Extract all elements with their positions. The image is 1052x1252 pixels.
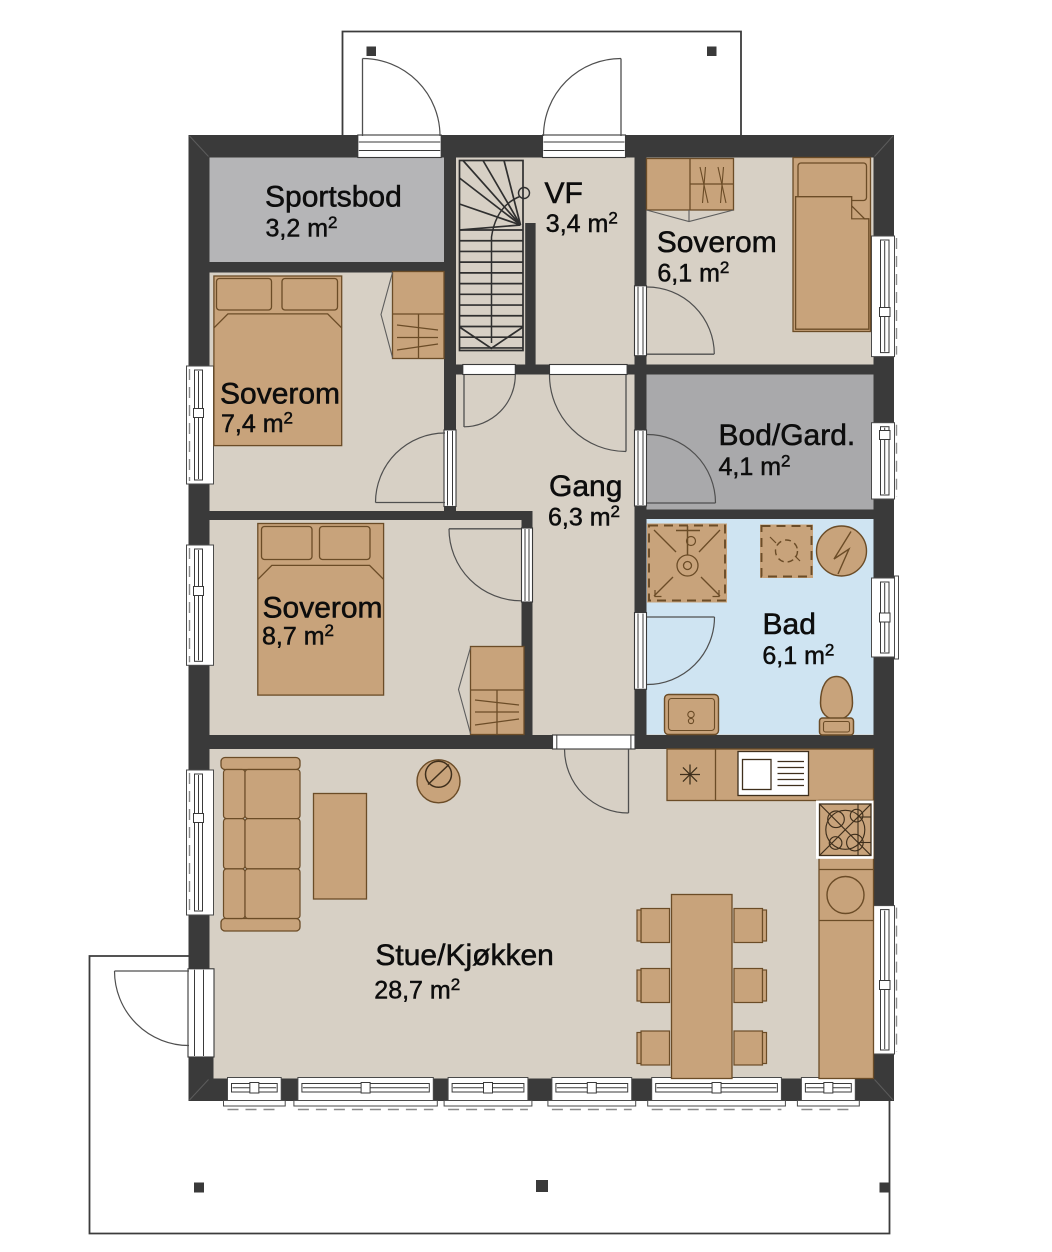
svg-text:4,1 m2: 4,1 m2 xyxy=(719,452,791,482)
svg-text:8,7 m2: 8,7 m2 xyxy=(262,621,334,651)
svg-text:VF: VF xyxy=(545,177,583,210)
svg-text:3,4 m2: 3,4 m2 xyxy=(546,209,618,239)
svg-text:Soverom: Soverom xyxy=(657,226,777,259)
svg-text:28,7 m2: 28,7 m2 xyxy=(374,975,460,1005)
svg-text:6,1 m2: 6,1 m2 xyxy=(657,258,729,288)
svg-text:Soverom: Soverom xyxy=(263,592,383,625)
svg-text:7,4 m2: 7,4 m2 xyxy=(221,409,293,439)
svg-text:Gang: Gang xyxy=(549,470,622,503)
svg-text:Sportsbod: Sportsbod xyxy=(265,181,402,214)
svg-text:Stue/Kjøkken: Stue/Kjøkken xyxy=(375,939,553,972)
svg-text:6,1 m2: 6,1 m2 xyxy=(762,641,834,671)
svg-text:Soverom: Soverom xyxy=(220,377,340,410)
svg-text:Bad: Bad xyxy=(763,608,816,641)
svg-text:Bod/Gard.: Bod/Gard. xyxy=(719,419,856,452)
svg-text:6,3 m2: 6,3 m2 xyxy=(548,502,620,532)
svg-text:3,2 m2: 3,2 m2 xyxy=(266,213,338,243)
